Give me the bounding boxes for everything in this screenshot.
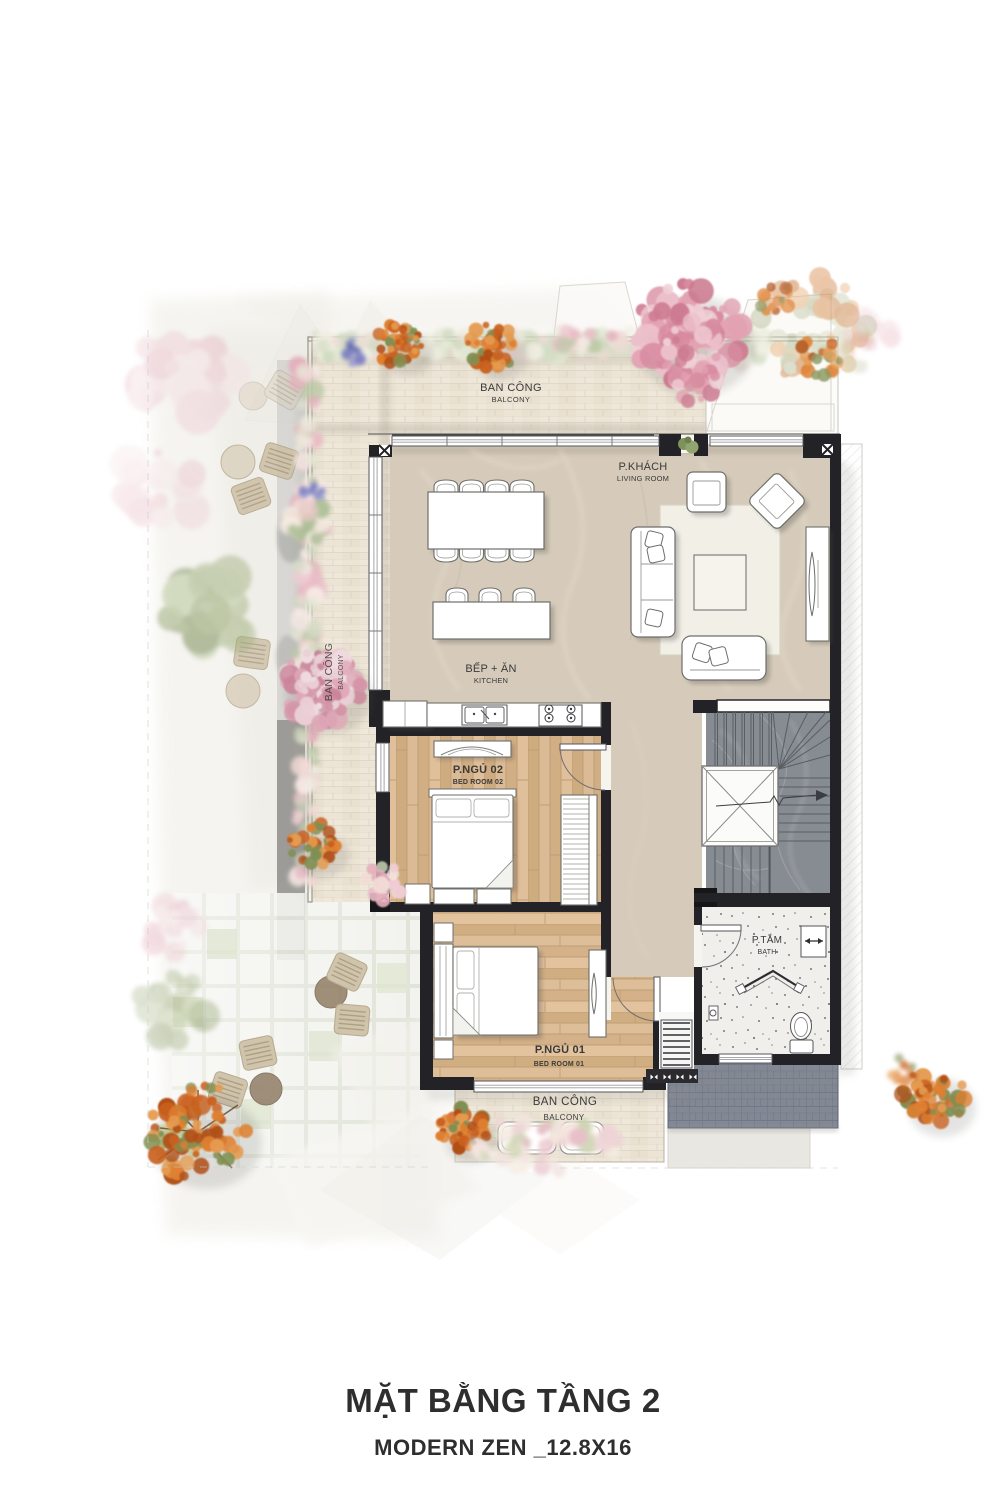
svg-text:P.NGỦ 01: P.NGỦ 01 [535, 1043, 585, 1056]
svg-text:P.NGỦ 02: P.NGỦ 02 [453, 763, 503, 776]
svg-text:BẾP + ĂN: BẾP + ĂN [465, 662, 516, 675]
svg-text:KITCHEN: KITCHEN [474, 676, 508, 685]
svg-text:BED ROOM 01: BED ROOM 01 [534, 1061, 584, 1068]
svg-text:BATH: BATH [758, 949, 777, 956]
svg-text:BAN CÔNG: BAN CÔNG [480, 381, 542, 394]
svg-text:BAN CÔNG: BAN CÔNG [322, 643, 335, 701]
svg-text:BALCONY: BALCONY [338, 654, 345, 690]
svg-text:MODERN ZEN _12.8X16: MODERN ZEN _12.8X16 [374, 1435, 632, 1460]
svg-text:MẶT BẰNG TẦNG 2: MẶT BẰNG TẦNG 2 [345, 1382, 661, 1419]
svg-text:BAN CÔNG: BAN CÔNG [533, 1095, 598, 1108]
svg-text:P.KHÁCH: P.KHÁCH [619, 460, 668, 473]
svg-text:BALCONY: BALCONY [492, 395, 531, 404]
svg-text:LIVING ROOM: LIVING ROOM [617, 474, 669, 483]
svg-text:P.TẮM: P.TẮM [752, 933, 782, 946]
svg-text:BALCONY: BALCONY [543, 1113, 584, 1122]
svg-text:BED ROOM 02: BED ROOM 02 [453, 779, 503, 786]
